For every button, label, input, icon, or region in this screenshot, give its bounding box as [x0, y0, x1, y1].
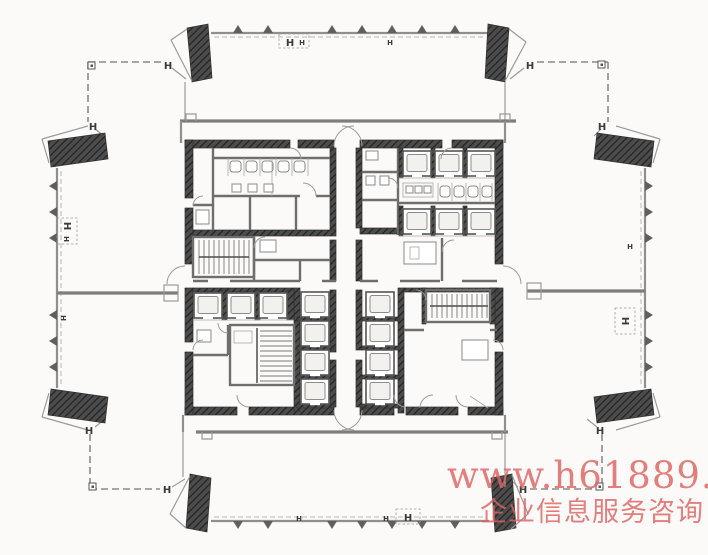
- steel-column-icon: H: [627, 243, 633, 251]
- curtain-wall-right: [641, 168, 653, 388]
- stair-lower-right: [422, 288, 495, 324]
- toilet-fixture: [440, 186, 450, 197]
- mullion-ticks-left: [49, 181, 57, 372]
- stair-landing: [234, 331, 252, 343]
- curtain-wall-top: [211, 25, 489, 37]
- toilet-room-upper-right: [399, 183, 495, 203]
- steel-column-icon: H: [404, 513, 412, 524]
- sink-fixture: [406, 186, 413, 193]
- anchor-square-marks: [88, 61, 605, 490]
- mullion-ticks-bottom: [233, 521, 460, 529]
- elevator-icon: [301, 321, 329, 346]
- sink-fixture: [415, 186, 422, 193]
- steel-column-icon: H: [598, 122, 606, 133]
- mullion-ticks-top: [233, 25, 460, 33]
- equipment-room-fixture: [462, 340, 488, 360]
- elevator-icon: [227, 293, 255, 318]
- toilet-fixture: [468, 186, 478, 197]
- elevator-icon: [301, 292, 329, 317]
- elevator-icon: [435, 209, 463, 234]
- toilet-room-upper-left: [193, 148, 330, 230]
- steel-column-icon: H: [61, 222, 72, 230]
- steel-column-icon: H: [526, 61, 534, 72]
- toilet-fixture: [454, 186, 464, 197]
- elevator-icon: [259, 293, 287, 318]
- elevator-icon: [366, 350, 394, 375]
- rooms-upper-left: [254, 237, 330, 281]
- steel-column-symbols: H H H H H H H H H H H H H H H H H H H: [57, 34, 635, 524]
- service-fixture: [366, 176, 375, 185]
- steel-column-icon: H: [519, 485, 527, 496]
- service-fixture: [380, 176, 389, 185]
- steel-column-icon: H: [299, 39, 305, 47]
- steel-column-icon: H: [85, 426, 93, 437]
- elevator-icon: [467, 209, 495, 234]
- service-fixture: [366, 151, 378, 160]
- equipment-room-fixture: [404, 242, 436, 264]
- corner-pylon-lower-right: [594, 389, 660, 430]
- elevator-icon: [366, 321, 394, 346]
- elevator-icon: [403, 209, 431, 234]
- toilet-fixture: [278, 161, 289, 172]
- service-fixture: [260, 240, 276, 252]
- floor-plate-walls: [57, 114, 645, 439]
- steel-column-icon: H: [596, 426, 604, 437]
- elevator-icon: [366, 379, 394, 404]
- steel-column-icon: H: [59, 315, 67, 321]
- rooms-upper-right: [362, 148, 398, 235]
- elevator-icon: [366, 292, 394, 317]
- steel-column-icon: H: [163, 485, 171, 496]
- elevator-bank-lower-left: [193, 290, 334, 408]
- floor-plan-drawing: H H H H H H H H H H H H H H H H H H H: [0, 0, 708, 555]
- toilet-fixture: [482, 186, 492, 197]
- scanned-floor-plan-page: H H H H H H H H H H H H H H H H H H H ww…: [0, 0, 708, 555]
- curtain-wall-bottom: [211, 517, 489, 529]
- curtain-wall-left: [49, 168, 61, 388]
- steel-column-icon: H: [387, 39, 393, 47]
- service-fixture: [196, 210, 209, 224]
- steel-column-icon: H: [296, 515, 302, 523]
- elevator-bank-lower-right: [362, 292, 399, 408]
- sink-fixture: [424, 186, 431, 193]
- elevator-icon: [194, 293, 222, 318]
- steel-column-icon: H: [383, 515, 389, 523]
- stair-upper-left: [193, 237, 254, 277]
- toilet-fixture: [294, 161, 305, 172]
- sink-fixture: [264, 184, 273, 192]
- elevator-icon: [467, 151, 495, 176]
- toilet-fixture: [246, 161, 257, 172]
- sink-fixture: [232, 184, 241, 192]
- steel-column-icon: H: [89, 122, 97, 133]
- steel-column-icon: H: [164, 61, 172, 72]
- mullion-ticks-right: [645, 181, 653, 372]
- sink-fixture: [248, 184, 257, 192]
- room-lower-right: [404, 330, 497, 408]
- corner-pylon-top-right: [485, 24, 526, 121]
- elevator-icon: [403, 151, 431, 176]
- steel-column-icon: H: [619, 317, 630, 325]
- steel-column-icon: H: [286, 38, 294, 49]
- rooms-lower-left: [193, 325, 228, 355]
- toilet-fixture: [262, 161, 273, 172]
- elevator-icon: [301, 350, 329, 375]
- elevator-icon: [301, 379, 329, 404]
- steel-column-icon: H: [62, 236, 70, 242]
- stair-lower-left: [230, 325, 294, 385]
- toilet-fixture: [230, 161, 241, 172]
- service-fixture: [197, 330, 211, 342]
- corner-step-walls: [88, 62, 608, 489]
- rooms-upper-right-lower: [404, 238, 442, 281]
- elevator-icon: [435, 151, 463, 176]
